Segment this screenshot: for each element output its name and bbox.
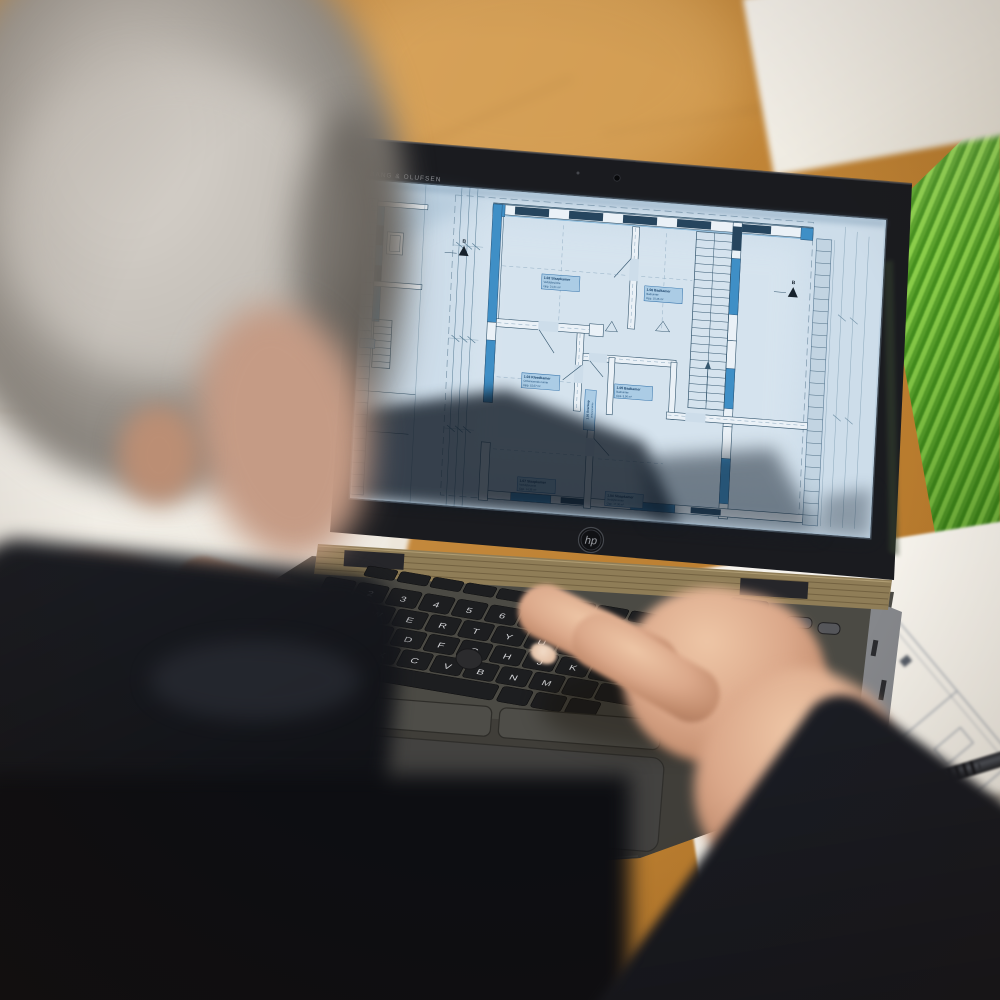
hp-logo: hp bbox=[579, 528, 604, 553]
svg-text:B: B bbox=[792, 280, 796, 286]
jacket-fold-highlight bbox=[150, 640, 360, 720]
svg-text:hp: hp bbox=[584, 535, 597, 548]
room-label-1-06: 1.06 Badkamer Badruimte Opp. 10,45 m² bbox=[644, 286, 683, 304]
jacket-body bbox=[0, 775, 630, 1000]
floor-plan: 1.02 Slaapkamer Verblijfsruimte Opp. 21,… bbox=[350, 180, 886, 538]
webcam-led bbox=[577, 172, 580, 175]
svg-text:B: B bbox=[462, 239, 466, 245]
room-label-1-02: 1.02 Slaapkamer Verblijfsruimte Opp. 21,… bbox=[541, 274, 580, 292]
webcam bbox=[614, 175, 620, 181]
room-label-1-03: 1.03 Kleedkamer Onbenoemde ruimte Opp. 1… bbox=[521, 373, 560, 391]
room-label-1-05: 1.05 Badkamer Badruimte Opp. 5,90 m² bbox=[614, 384, 653, 401]
photo-scene: 1.02 Slaapkamer Verblijfsruimte Opp. 21,… bbox=[0, 0, 1000, 1000]
ear bbox=[118, 405, 200, 505]
